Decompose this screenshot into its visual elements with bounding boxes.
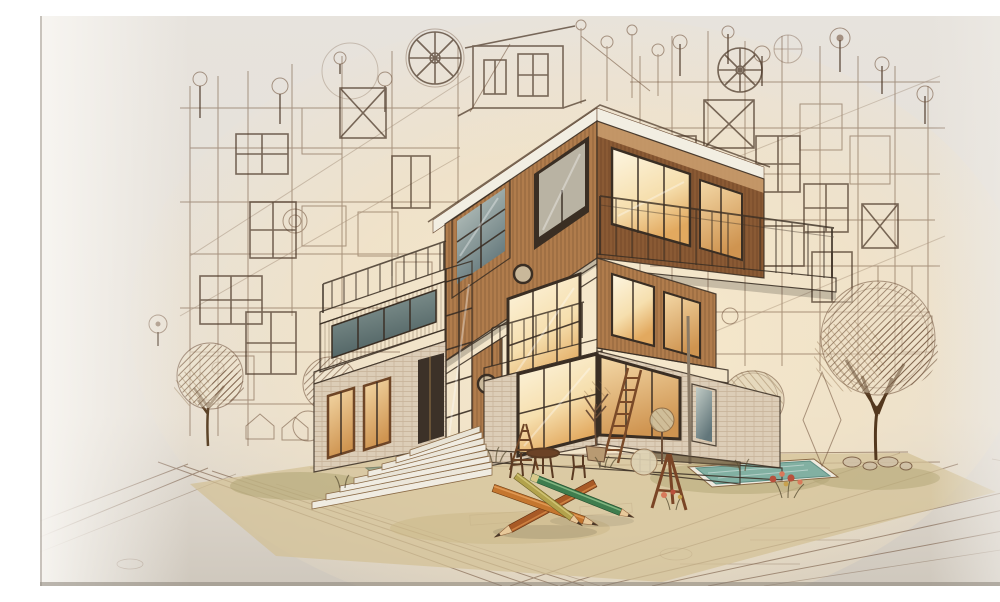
entrance-door [418, 353, 444, 444]
porthole-detail [514, 265, 532, 283]
architectural-sketch-image [40, 16, 1000, 586]
bottom-edge-line [40, 582, 1000, 586]
sketch-scene-svg [40, 16, 1000, 586]
compass-wheel-icon [406, 29, 464, 87]
downspout-pipe [688, 316, 690, 464]
left-edge-line [40, 16, 42, 586]
